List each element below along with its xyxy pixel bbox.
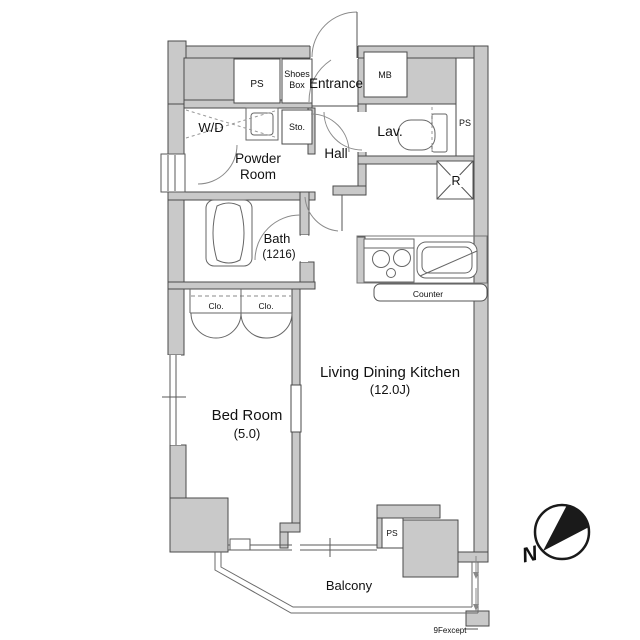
label-floor-note: 9Fexcept bbox=[434, 626, 468, 635]
label-balcony: Balcony bbox=[326, 578, 373, 593]
label-ldk-1: Living Dining Kitchen bbox=[320, 364, 460, 381]
wall-partition-jog-v bbox=[280, 532, 288, 548]
hall-ldk-door-arc bbox=[305, 197, 338, 231]
label-closet-right: Clo. bbox=[258, 301, 273, 311]
label-bedroom-1: Bed Room bbox=[212, 407, 283, 424]
label-powder-1: Powder bbox=[235, 151, 281, 166]
label-bath-1: Bath bbox=[264, 231, 291, 246]
wall-partition-jog-h bbox=[280, 523, 300, 532]
label-fridge: R bbox=[451, 174, 460, 188]
label-sto: Sto. bbox=[289, 122, 305, 132]
lav-door-opening bbox=[357, 112, 367, 152]
wall-top-left-corner bbox=[168, 41, 186, 104]
pillar-bottom-left bbox=[170, 498, 228, 552]
stove-icon bbox=[364, 239, 414, 282]
wall-hall-ldk-h bbox=[333, 186, 366, 195]
wall-ps-bottom-left bbox=[377, 518, 382, 548]
entrance-opening bbox=[310, 44, 358, 59]
closet-right-doors bbox=[241, 313, 292, 338]
wd-door-arc bbox=[198, 145, 237, 184]
wall-mass-top-left bbox=[184, 58, 234, 104]
bathtub-icon bbox=[206, 200, 252, 266]
label-mb: MB bbox=[378, 70, 392, 80]
toilet-icon bbox=[398, 107, 447, 152]
ldk-window-bottom bbox=[300, 538, 377, 557]
powder-window-box bbox=[161, 154, 185, 192]
label-powder-2: Room bbox=[240, 167, 276, 182]
closets bbox=[190, 289, 292, 338]
label-ps-right: PS bbox=[459, 118, 471, 128]
fixtures bbox=[186, 107, 487, 301]
label-ldk-2: (12.0J) bbox=[370, 382, 410, 397]
wall-bath-bottom bbox=[168, 282, 315, 289]
sink-icon bbox=[417, 242, 477, 278]
label-bath-2: (1216) bbox=[262, 249, 295, 261]
wall-right bbox=[474, 46, 488, 562]
ps-right-box bbox=[456, 58, 474, 156]
wall-left-lower bbox=[170, 445, 186, 498]
wall-bath-right-upper bbox=[300, 192, 309, 235]
bath-door-opening bbox=[301, 235, 308, 262]
label-wd: W/D bbox=[198, 120, 223, 135]
label-bedroom-2: (5.0) bbox=[234, 426, 261, 441]
label-closet-left: Clo. bbox=[208, 301, 223, 311]
wall-left-mid bbox=[168, 192, 184, 355]
label-shoes-1: Shoes bbox=[284, 69, 310, 79]
closet-frame bbox=[190, 289, 292, 313]
bedroom-vent-box bbox=[230, 539, 250, 550]
floor-plan: PS Shoes Box Entrance MB W/D Sto. Lav. P… bbox=[0, 0, 640, 640]
label-entrance: Entrance bbox=[309, 76, 363, 91]
label-counter: Counter bbox=[413, 289, 443, 299]
windows bbox=[161, 154, 377, 557]
bedroom-window-left-base bbox=[167, 355, 181, 445]
wall-ps-bottom-top bbox=[377, 505, 440, 518]
compass-icon bbox=[535, 505, 589, 559]
partition-sliding-door bbox=[291, 385, 301, 432]
label-hall: Hall bbox=[324, 146, 347, 161]
compass-needle bbox=[543, 505, 589, 551]
wall-right-connector bbox=[458, 552, 488, 562]
label-shoes-2: Box bbox=[289, 80, 305, 90]
closet-left-doors bbox=[191, 313, 241, 338]
label-lav: Lav. bbox=[377, 123, 402, 139]
wall-powder-bottom bbox=[168, 192, 315, 200]
pillar-bottom-right bbox=[403, 520, 458, 577]
label-ps-bottom: PS bbox=[386, 528, 398, 538]
label-ps-top: PS bbox=[250, 79, 264, 90]
